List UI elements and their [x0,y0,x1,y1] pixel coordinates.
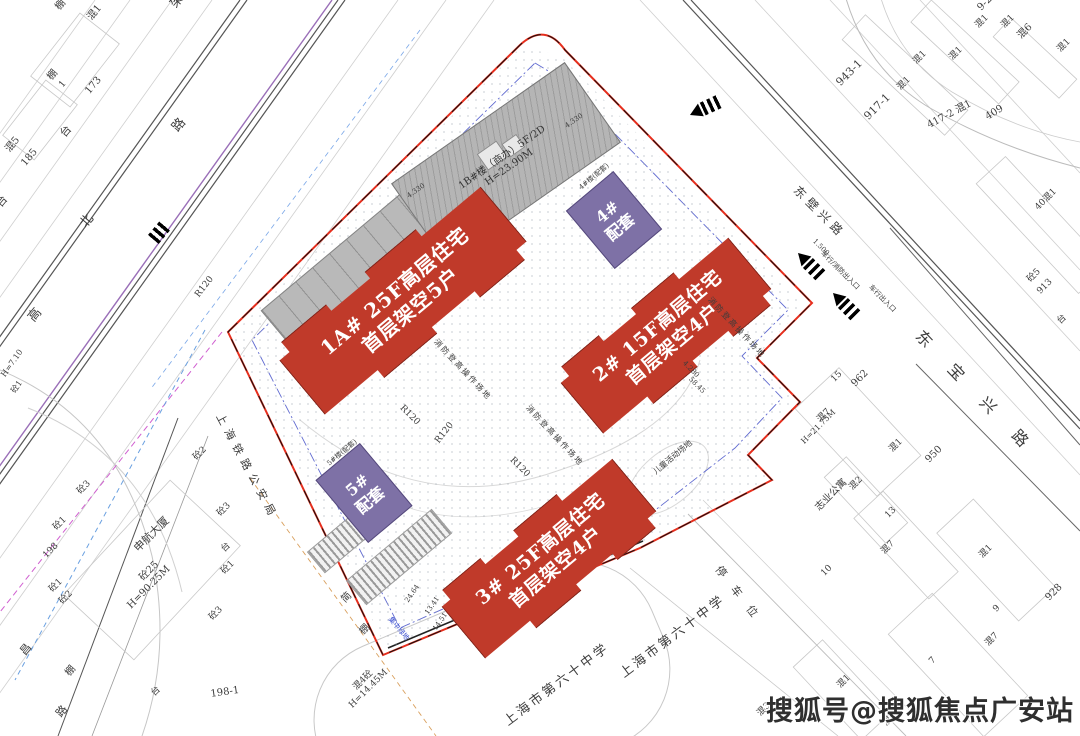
plot-label: 15 [830,370,844,384]
road-name-char: 昌 [18,642,33,657]
plot-label: 台 [150,686,163,699]
dimension-label: 4.330 [564,113,584,130]
dimension-label: 14.51 [432,612,449,632]
school-label: 上海市第六十中学 [502,641,612,728]
road-name-label: 东壁兴路 [792,184,849,241]
map-labels-layer: 棚混1架棚1173路台混5185台北高H=7.10砼1R120上海铁路公安局砼2… [0,0,1080,736]
plot-label: 198-1 [210,686,240,700]
plot-label: 砼5 [1026,268,1043,285]
plot-label: 台 [0,194,9,209]
plot-label: 台 [58,124,73,139]
plot-label: 台 [220,542,233,555]
plot-label: 917-1 [862,92,892,122]
plot-label: 13 [884,506,898,520]
plot-label: 砼2 [192,446,209,463]
road-name-char: 路 [170,116,188,134]
plot-label: 10 [820,564,834,578]
r120-label: R120 [508,456,531,479]
plot-label: 混6 [1016,22,1035,41]
dimension-label: 13.41 [424,596,441,616]
green-space-label: 集中绿地 [387,616,410,642]
plot-label: 砼1 [220,560,237,577]
dimension-label: H=7.10 [0,348,25,378]
building-4-caption: 4#楼(配套) [578,162,611,191]
plot-label: 混2 [848,476,865,493]
playground-label: 儿童活动场地 [652,439,694,476]
plot-label: 混1 [836,674,853,691]
watermark: 搜狐号@搜狐焦点广安站 [766,689,1074,728]
plot-label: 943-1 [834,58,864,88]
plot-label: 混1 [86,3,104,22]
plot-label: 砼3 [76,480,93,497]
plot-label: 173 [84,75,104,96]
plot-label: 棚 [64,664,78,678]
plot-label: 1 [58,80,69,90]
plot-label: 9-2 [976,0,994,13]
plot-label: 928 [1044,582,1065,603]
plot-label: 砼3 [208,606,225,623]
plot-label: 185 [20,147,40,168]
plot-label: 混1 [1056,38,1073,55]
plot-label: 台 [1056,314,1069,327]
dimension-label: 58.45 [687,376,706,395]
plot-label: 9 [992,604,1002,614]
r120-label: R120 [194,275,216,299]
plot-label: 409 [984,104,1005,123]
road-name-char: 高 [26,306,44,324]
plot-label: 混1 [978,544,995,561]
plot-label: 40混1 [1034,187,1059,212]
road-name-char: 路 [54,704,69,719]
r120-label: R120 [398,404,421,427]
plot-label: 913 [1036,278,1055,297]
plot-label: 混7 [984,632,1001,649]
entrance-label: 车行出入口 [867,284,897,314]
plot-label: 砼1 [48,578,65,595]
plot-label: 混1 [974,14,991,31]
zhiye-apartment-label: 志业公寓 [814,478,849,513]
plot-label: 混7 [880,540,897,557]
plot-label: 棚 [54,0,68,12]
plot-label: 混1 [888,438,905,455]
dimension-label: 24.64 [404,584,421,604]
plot-label: 混1 [896,76,913,93]
site-plan-canvas: 1B#楼（商办）5F/2D H=23.90M 1A# 25F高层住宅 首层架空5… [0,0,1080,736]
plot-label: 混1 [1000,14,1017,31]
plot-label: 简 [340,591,354,605]
dimension-label: 4.330 [406,183,426,200]
plot-label: 198 [42,542,61,561]
plot-label: 混1 [948,46,965,63]
building-5-caption: 5#楼(配套) [326,438,359,467]
school-label: 上海市第六十中学 [618,593,728,680]
plot-label: 砼1 [10,379,24,394]
plot-label: 砼2 [58,590,75,607]
plot-label: 砼1 [52,516,69,533]
road-name-char: 北 [78,212,96,230]
fire-access-label: 消防登高操作场地 [524,404,584,468]
fire-access-label: 消防登高操作场地 [706,296,766,360]
entrance-label: 车行/消防出入口 [819,250,860,291]
plot-label: 混1 [912,50,929,67]
plot-label: 950 [924,444,945,465]
road-name-char: 架 [168,0,186,10]
plot-label: 棚 [358,623,372,637]
plot-label: 砼3 [216,502,233,519]
r120-label: R120 [434,421,456,445]
fire-access-label: 消防登高操作场地 [432,338,492,402]
plot-label: 7 [928,656,938,666]
shenhang-tower-label: 申航大厦 [132,515,171,554]
plot-label: 962 [850,368,871,389]
plot-label: 417-2 混1 [926,99,973,131]
plot-label: 混5 [4,135,22,154]
